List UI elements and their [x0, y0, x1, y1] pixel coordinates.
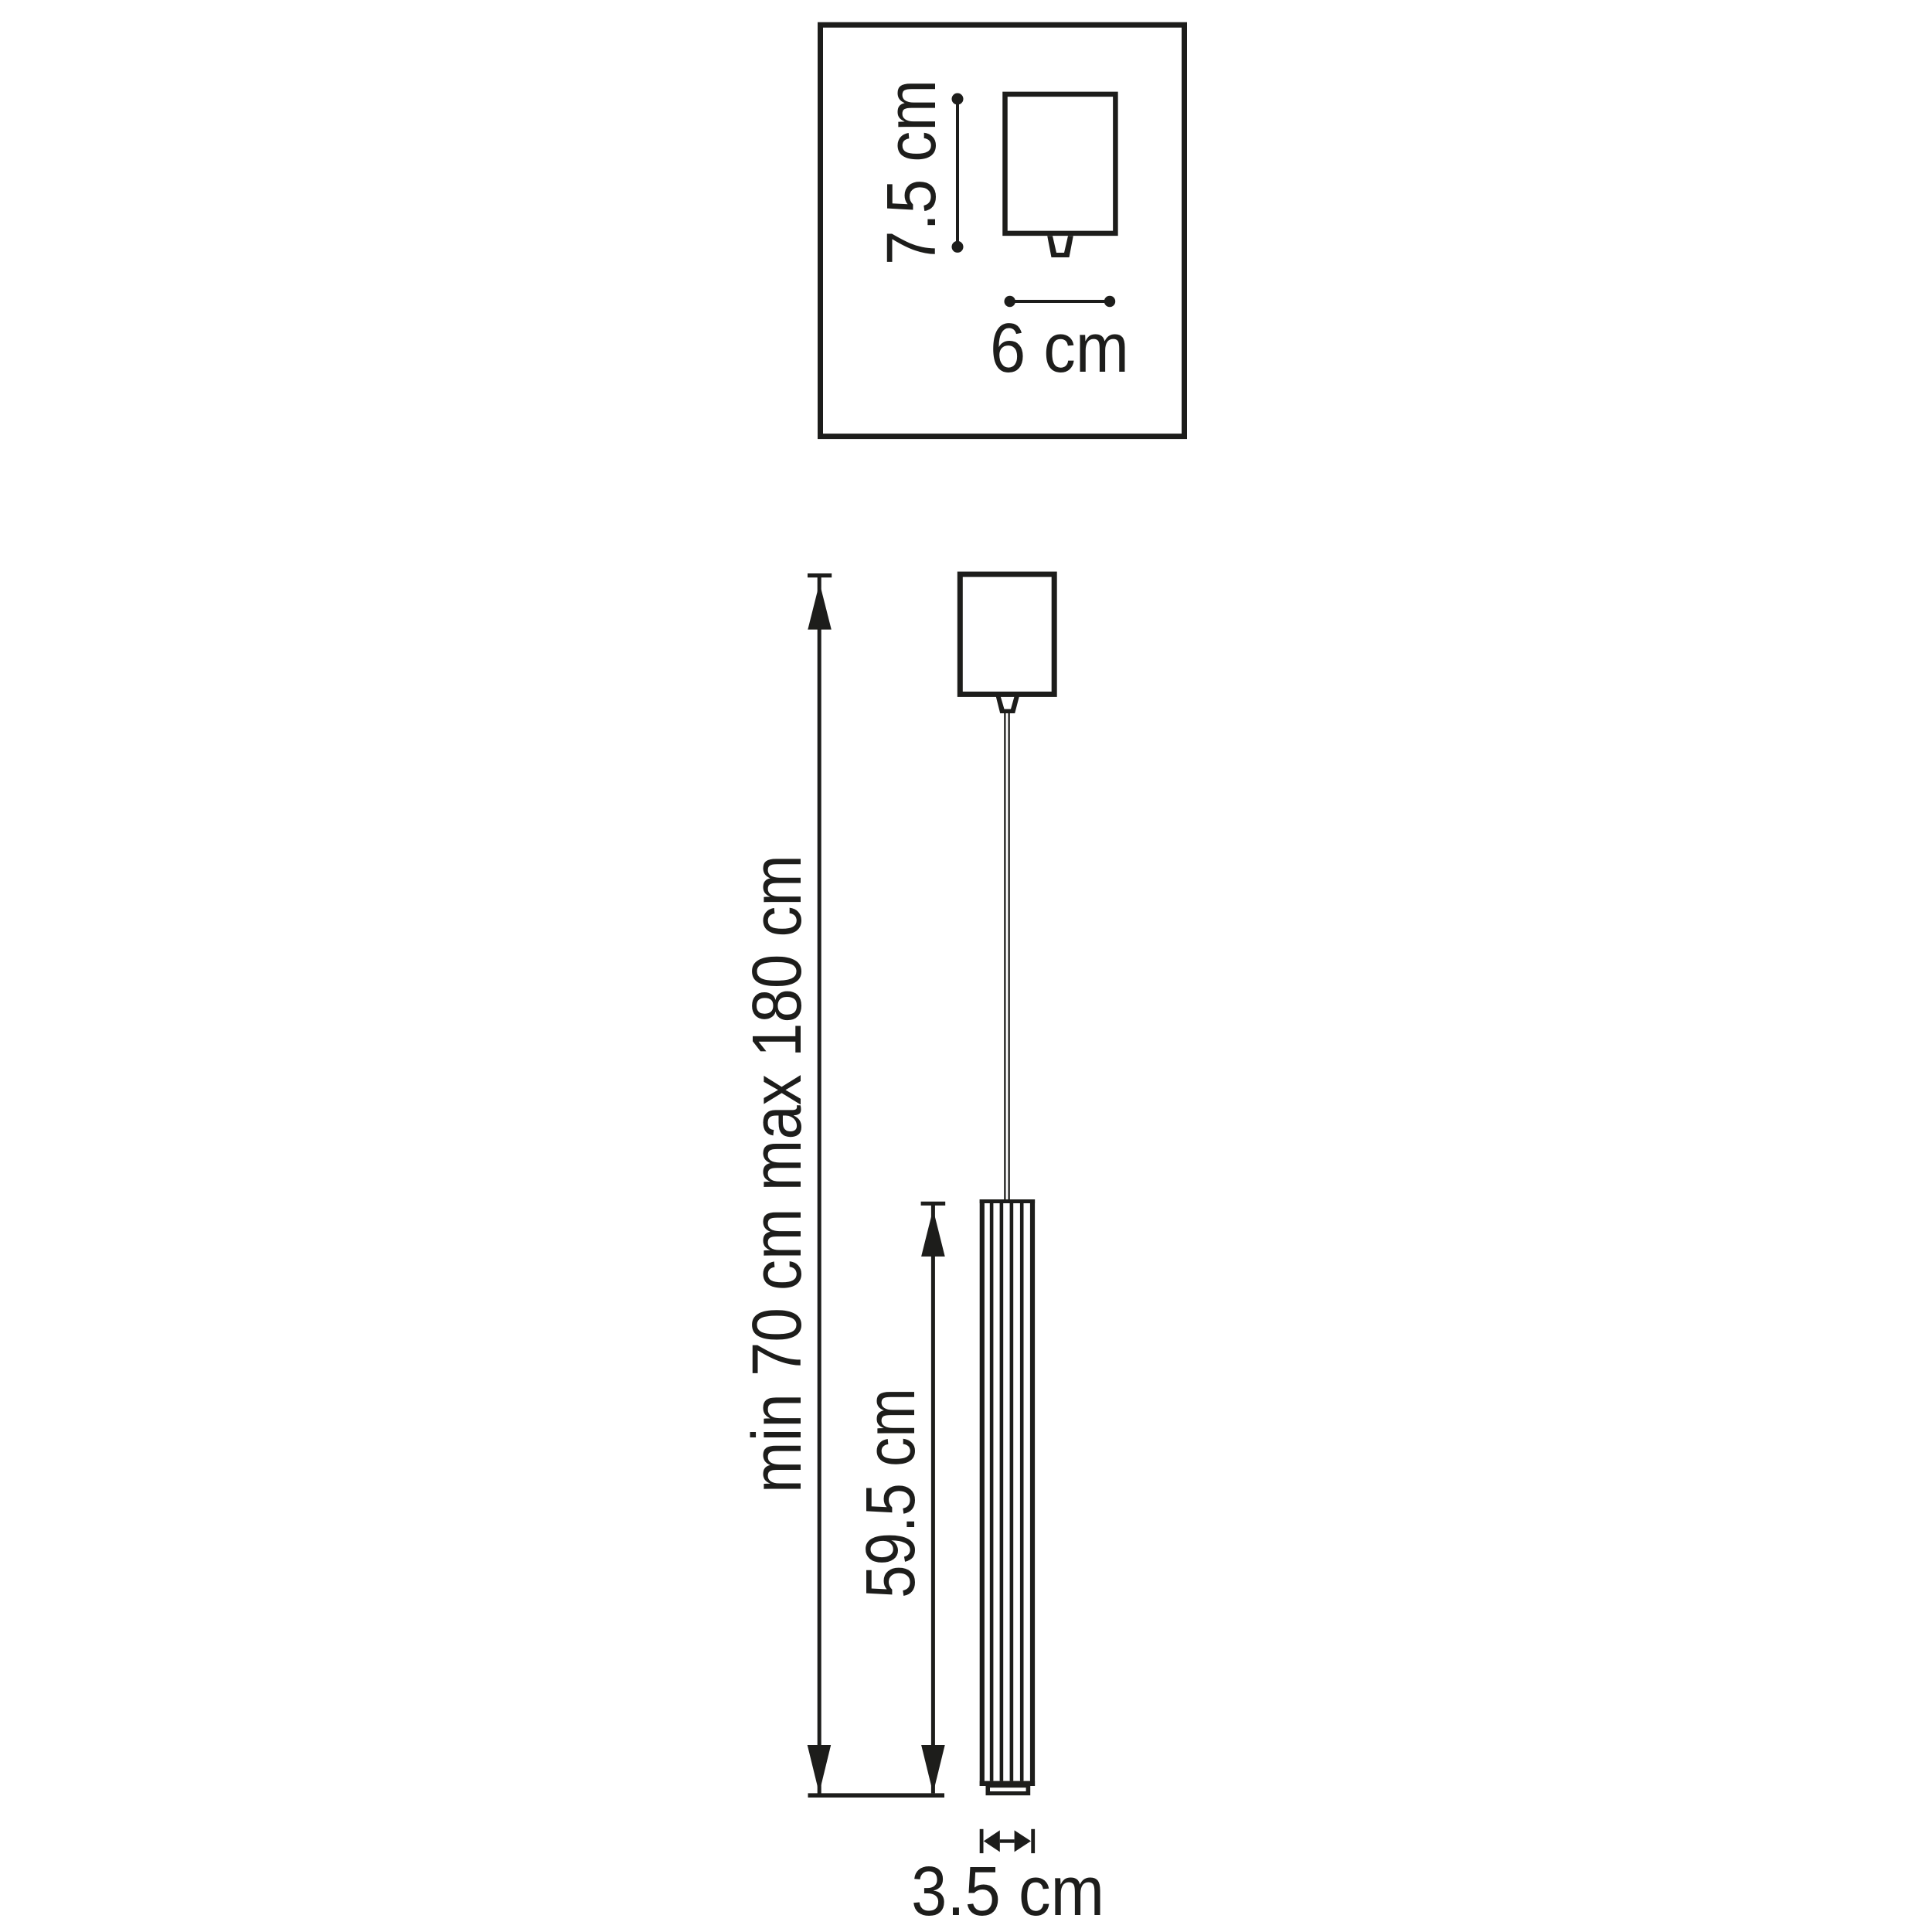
svg-text:59.5 cm: 59.5 cm [852, 1388, 930, 1598]
svg-text:6 cm: 6 cm [990, 310, 1129, 387]
svg-text:3.5 cm: 3.5 cm [911, 1853, 1104, 1930]
svg-text:7.5 cm: 7.5 cm [873, 80, 951, 265]
svg-text:min 70 cm max 180 cm: min 70 cm max 180 cm [739, 855, 816, 1493]
